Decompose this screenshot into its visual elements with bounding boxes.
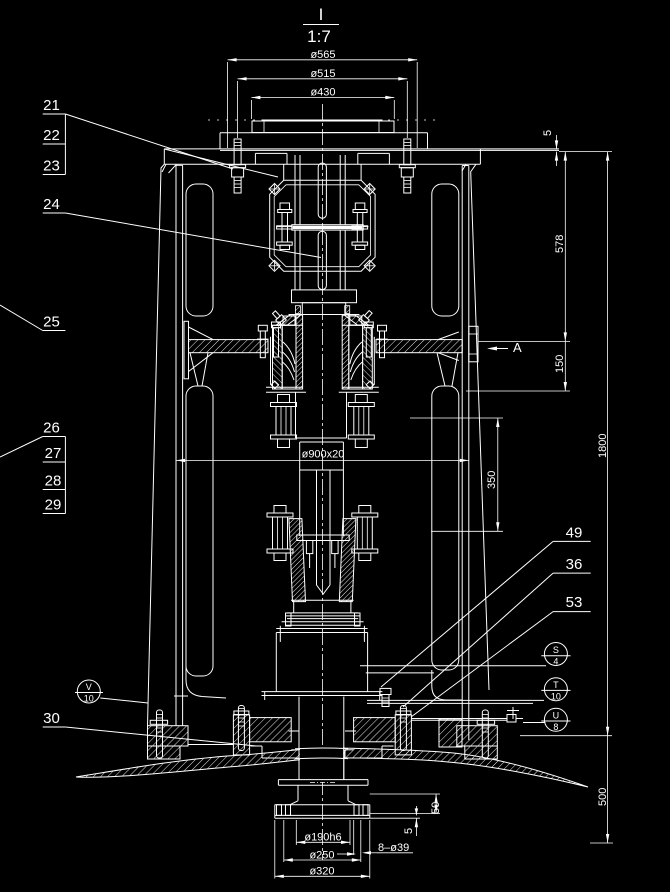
svg-text:26: 26 <box>43 420 60 437</box>
svg-text:I: I <box>319 5 324 24</box>
svg-text:22: 22 <box>43 127 60 144</box>
svg-text:49: 49 <box>566 525 583 542</box>
svg-text:T: T <box>553 680 559 690</box>
svg-text:A: A <box>513 340 522 355</box>
svg-text:ø190h6: ø190h6 <box>304 832 341 844</box>
svg-text:350: 350 <box>486 471 498 489</box>
svg-text:5: 5 <box>403 828 415 834</box>
svg-text:8: 8 <box>553 722 558 732</box>
svg-text:30: 30 <box>43 710 60 727</box>
svg-text:36: 36 <box>566 556 583 573</box>
svg-text:V: V <box>86 682 92 692</box>
svg-text:ø320: ø320 <box>309 866 334 878</box>
svg-text:ø565: ø565 <box>310 49 335 61</box>
svg-text:578: 578 <box>554 235 566 253</box>
svg-text:24: 24 <box>43 196 60 213</box>
svg-text:10: 10 <box>84 694 94 704</box>
svg-text:53: 53 <box>566 594 583 611</box>
svg-text:5: 5 <box>542 130 554 136</box>
svg-text:21: 21 <box>43 97 60 114</box>
svg-text:28: 28 <box>45 473 62 490</box>
svg-text:29: 29 <box>45 497 62 514</box>
svg-text:S: S <box>553 645 559 655</box>
svg-text:1:7: 1:7 <box>307 27 331 46</box>
svg-text:23: 23 <box>43 158 60 175</box>
svg-text:U: U <box>553 711 560 721</box>
svg-text:8–ø39: 8–ø39 <box>378 842 409 854</box>
svg-text:ø430: ø430 <box>310 87 335 99</box>
svg-text:4: 4 <box>553 657 558 667</box>
svg-text:10: 10 <box>551 692 561 702</box>
svg-text:ø515: ø515 <box>310 68 335 80</box>
svg-text:ø900x20: ø900x20 <box>302 449 345 461</box>
svg-text:150: 150 <box>554 355 566 373</box>
svg-text:27: 27 <box>45 445 62 462</box>
svg-text:25: 25 <box>43 314 60 331</box>
